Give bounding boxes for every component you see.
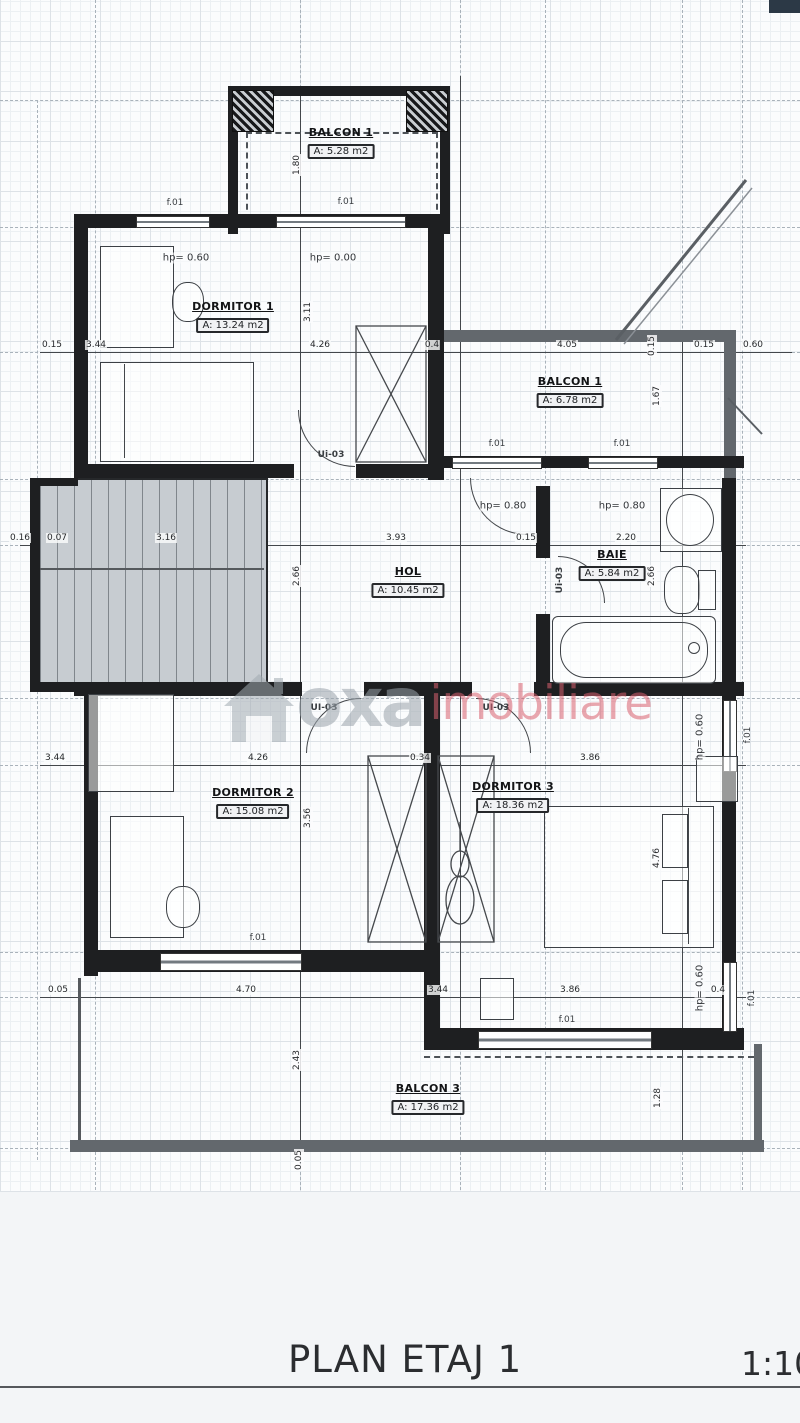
- title-rule: [0, 1386, 800, 1388]
- dimension-label: 1.80: [292, 154, 302, 176]
- parapet-height-label: hp= 0.60: [695, 714, 706, 761]
- dimension-label: 2.66: [647, 565, 657, 587]
- parapet-height-label: hp= 0.00: [310, 253, 357, 264]
- dimension-label: 4.76: [652, 847, 662, 869]
- plan-title: PLAN ETAJ 1: [288, 1338, 522, 1381]
- bed-pillow-line: [688, 808, 689, 944]
- dimension-label: 0.34: [409, 753, 431, 763]
- parapet-height-label: hp= 0.80: [599, 501, 646, 512]
- dimension-label: 0.15: [647, 335, 657, 357]
- dimension-label: 4.26: [309, 340, 331, 350]
- dimension-label: 3.86: [579, 753, 601, 763]
- window: [588, 457, 658, 469]
- axis-line: [742, 0, 743, 1190]
- dimension-line: [40, 997, 746, 998]
- bathtub-drain: [688, 642, 700, 654]
- floor-plan-sheet: BALCON 1 A: 5.28 m2 DORMITOR 1 A: 13.24 …: [0, 0, 800, 1423]
- chair: [166, 886, 200, 928]
- side-table: [480, 978, 514, 1020]
- room-area: A: 6.78 m2: [537, 393, 604, 408]
- door-tag: Ui-03: [555, 567, 565, 594]
- title-block: PLAN ETAJ 1 1:10: [0, 1192, 800, 1423]
- room-name: HOL: [371, 565, 444, 578]
- wall: [30, 478, 78, 486]
- dimension-label: 4.26: [247, 753, 269, 763]
- room-area: A: 15.08 m2: [216, 804, 289, 819]
- toilet-tank: [698, 570, 716, 610]
- dimension-label: 0.05: [294, 1149, 304, 1171]
- dimension-line: [40, 352, 792, 353]
- room-name: DORMITOR 2: [212, 786, 294, 799]
- pillar: [232, 90, 274, 132]
- dimension-line: [682, 332, 683, 1144]
- dimension-label: 0.07: [46, 533, 68, 543]
- dimension-label: 3.56: [303, 807, 313, 829]
- pillar: [406, 90, 448, 132]
- window-tag: f.01: [743, 727, 753, 744]
- dimension-label: 2.66: [292, 565, 302, 587]
- dimension-label: 3.16: [155, 533, 177, 543]
- dimension-label: 2.43: [292, 1049, 302, 1071]
- window: [452, 457, 542, 469]
- toilet-bowl: [664, 566, 700, 614]
- sink-basin: [666, 494, 714, 546]
- window-tag: f.01: [250, 933, 267, 943]
- balcony-railing: [424, 1056, 754, 1058]
- window: [276, 216, 406, 228]
- axis-line: [545, 0, 546, 1190]
- dimension-label: 0.05: [47, 985, 69, 995]
- dimension-label: 1.28: [653, 1087, 663, 1109]
- window-tag: f.01: [559, 1015, 576, 1025]
- wall: [536, 486, 550, 558]
- room-name: BALCON 3: [391, 1082, 464, 1095]
- room-name: BAIE: [579, 548, 646, 561]
- room-label-balcon1-top: BALCON 1 A: 5.28 m2: [308, 126, 375, 159]
- staircase: [38, 478, 268, 690]
- dimension-line: [460, 76, 461, 1042]
- bed: [88, 694, 174, 792]
- room-label-balcon3: BALCON 3 A: 17.36 m2: [391, 1082, 464, 1115]
- door-tag: Ui-03: [318, 450, 345, 460]
- dimension-label: 4.70: [235, 985, 257, 995]
- dimension-label: 0.4: [424, 340, 440, 350]
- wall: [424, 690, 440, 1050]
- room-name: DORMITOR 1: [192, 300, 274, 313]
- room-label-dormitor3: DORMITOR 3 A: 18.36 m2: [472, 780, 554, 813]
- bed-pillow-line: [124, 364, 125, 458]
- axis-line: [0, 100, 800, 101]
- room-label-dormitor1: DORMITOR 1 A: 13.24 m2: [192, 300, 274, 333]
- parapet-height-label: hp= 0.60: [163, 253, 210, 264]
- window-tag: f.01: [614, 439, 631, 449]
- room-name: BALCON 1: [308, 126, 375, 139]
- room-label-dormitor2: DORMITOR 2 A: 15.08 m2: [212, 786, 294, 819]
- dimension-label: 0.15: [41, 340, 63, 350]
- parapet-wall: [754, 1044, 762, 1144]
- nightstand: [696, 756, 738, 802]
- dimension-label: 0.16: [9, 533, 31, 543]
- wall: [30, 478, 40, 690]
- staircase-landing-line: [38, 568, 264, 570]
- window: [723, 962, 737, 1032]
- room-name: DORMITOR 3: [472, 780, 554, 793]
- room-area: A: 10.45 m2: [371, 583, 444, 598]
- pillow: [662, 814, 688, 868]
- room-area: A: 5.28 m2: [308, 144, 375, 159]
- wall: [74, 464, 294, 478]
- room-name: BALCON 1: [537, 375, 604, 388]
- room-area: A: 5.84 m2: [579, 566, 646, 581]
- watermark-text-imobiliare: imobiliare: [429, 672, 652, 736]
- dimension-label: 3.44: [85, 340, 107, 350]
- room-label-baie: BAIE A: 5.84 m2: [579, 548, 646, 581]
- room-label-hol: HOL A: 10.45 m2: [371, 565, 444, 598]
- dimension-label: 3.44: [44, 753, 66, 763]
- dimension-label: 2.20: [615, 533, 637, 543]
- dimension-label: 3.11: [303, 301, 313, 323]
- house-icon: [222, 672, 296, 744]
- window: [136, 216, 210, 228]
- plan-scale: 1:10: [741, 1344, 800, 1383]
- balcony-edge: [78, 978, 81, 1144]
- dimension-label: 0.15: [693, 340, 715, 350]
- dimension-label: 0.15: [515, 533, 537, 543]
- window-tag: f.01: [167, 198, 184, 208]
- dimension-label: 0.60: [742, 340, 764, 350]
- watermark-text-oxa: oxa: [296, 672, 423, 736]
- room-label-balcon1-right: BALCON 1 A: 6.78 m2: [537, 375, 604, 408]
- window: [160, 953, 302, 971]
- parapet-height-label: hp= 0.80: [480, 501, 527, 512]
- pillow: [662, 880, 688, 934]
- bathtub-inner: [560, 622, 708, 678]
- room-area: A: 18.36 m2: [476, 798, 549, 813]
- window: [478, 1031, 652, 1049]
- dimension-label: 3.86: [559, 985, 581, 995]
- room-area: A: 17.36 m2: [391, 1100, 464, 1115]
- dimension-line: [300, 88, 301, 1160]
- wall: [356, 464, 444, 478]
- dimension-label: 1.67: [652, 385, 662, 407]
- window-tag: f.01: [747, 990, 757, 1007]
- dimension-label: 0.4: [710, 985, 726, 995]
- wall: [722, 478, 736, 690]
- dimension-label: 3.44: [427, 985, 449, 995]
- room-area: A: 13.24 m2: [196, 318, 269, 333]
- watermark: oxa imobiliare: [222, 672, 652, 744]
- dimension-label: 3.93: [385, 533, 407, 543]
- window-tag: f.01: [338, 197, 355, 207]
- corner-mark: [769, 0, 800, 13]
- window-tag: f.01: [489, 439, 506, 449]
- parapet-wall: [70, 1140, 764, 1152]
- parapet-height-label: hp= 0.60: [695, 965, 706, 1012]
- dimension-label: 4.05: [556, 340, 578, 350]
